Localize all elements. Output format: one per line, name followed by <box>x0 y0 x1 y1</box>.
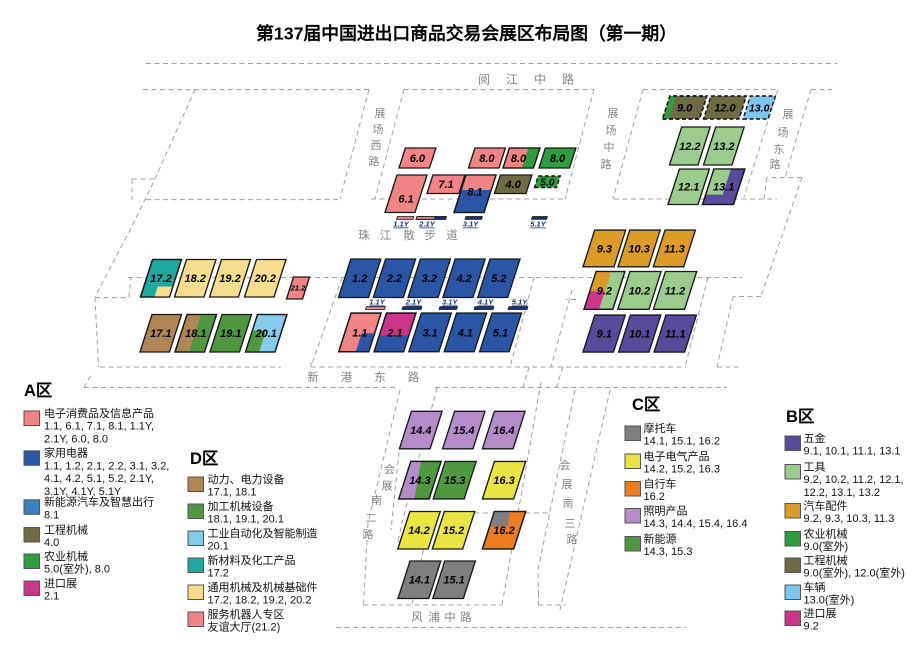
svg-text:8.1: 8.1 <box>467 187 482 199</box>
svg-text:新: 新 <box>307 370 319 384</box>
svg-text:17.2: 17.2 <box>208 568 229 580</box>
svg-text:14.3: 14.3 <box>409 475 430 487</box>
svg-text:3.1Y: 3.1Y <box>463 220 479 229</box>
svg-text:9.1, 10.1, 11.1, 13.1: 9.1, 10.1, 11.1, 13.1 <box>804 446 901 458</box>
svg-text:4.1: 4.1 <box>457 327 473 339</box>
svg-text:路: 路 <box>770 158 781 171</box>
svg-text:D区: D区 <box>190 449 219 468</box>
svg-text:路: 路 <box>562 72 574 87</box>
svg-text:12.2, 13.1, 13.2: 12.2, 13.1, 13.2 <box>804 487 880 499</box>
svg-text:15.3: 15.3 <box>444 475 465 487</box>
svg-text:路: 路 <box>601 158 612 171</box>
svg-text:摩托车: 摩托车 <box>644 421 677 435</box>
svg-text:场: 场 <box>373 122 384 136</box>
svg-text:19.2: 19.2 <box>219 273 240 285</box>
svg-text:5.1Y: 5.1Y <box>530 220 546 229</box>
svg-text:2.1Y: 2.1Y <box>418 220 435 229</box>
svg-text:14.3, 14.4, 15.4, 16.4: 14.3, 14.4, 15.4, 16.4 <box>644 518 748 530</box>
svg-text:进口展: 进口展 <box>804 607 837 620</box>
svg-text:18.1, 19.1, 20.1: 18.1, 19.1, 20.1 <box>208 514 284 526</box>
svg-text:五金: 五金 <box>804 431 826 445</box>
svg-text:9.0: 9.0 <box>677 103 693 115</box>
svg-text:8.0: 8.0 <box>479 153 495 165</box>
svg-text:B区: B区 <box>786 407 815 426</box>
svg-text:17.2, 18.2, 19.2, 20.2: 17.2, 18.2, 19.2, 20.2 <box>208 595 312 607</box>
svg-text:17.2: 17.2 <box>150 273 171 285</box>
svg-text:东: 东 <box>774 143 785 156</box>
svg-text:2.2: 2.2 <box>386 273 402 285</box>
svg-text:5.0: 5.0 <box>540 177 555 189</box>
svg-text:16.4: 16.4 <box>493 425 514 437</box>
svg-text:9.2, 10.2, 11.2, 12.1,: 9.2, 10.2, 11.2, 12.1, <box>804 474 904 486</box>
svg-text:10.1: 10.1 <box>629 329 650 341</box>
svg-text:工业自动化及智能制造: 工业自动化及智能制造 <box>208 526 318 540</box>
svg-text:16.2: 16.2 <box>644 491 665 503</box>
svg-text:阅: 阅 <box>478 73 490 87</box>
svg-text:8.0: 8.0 <box>550 153 566 165</box>
svg-text:展: 展 <box>375 107 386 120</box>
svg-text:12.0: 12.0 <box>714 103 736 115</box>
svg-text:9.2: 9.2 <box>804 621 819 633</box>
svg-text:13.0(室外): 13.0(室外) <box>804 593 855 607</box>
svg-text:20.2: 20.2 <box>253 273 275 285</box>
svg-text:中: 中 <box>444 611 456 624</box>
svg-text:13.1: 13.1 <box>713 182 734 194</box>
svg-text:浦: 浦 <box>428 611 440 624</box>
svg-text:珠: 珠 <box>358 228 370 242</box>
svg-text:4.0: 4.0 <box>505 179 522 191</box>
svg-text:工具: 工具 <box>804 460 826 473</box>
svg-text:会: 会 <box>560 459 571 472</box>
svg-text:18.1: 18.1 <box>185 328 206 340</box>
svg-text:步: 步 <box>424 229 436 242</box>
svg-text:第137届中国进出口商品交易会展区布局图（第一期）: 第137届中国进出口商品交易会展区布局图（第一期） <box>256 23 677 44</box>
svg-text:5.1Y: 5.1Y <box>512 298 528 307</box>
svg-text:服务机器人专区: 服务机器人专区 <box>208 607 285 621</box>
svg-text:1.1, 6.1, 7.1, 8.1, 1.1Y,: 1.1, 6.1, 7.1, 8.1, 1.1Y, <box>44 421 154 433</box>
svg-text:友谊大厅(21.2): 友谊大厅(21.2) <box>208 620 281 634</box>
svg-text:5.2: 5.2 <box>491 273 506 285</box>
svg-text:14.1, 15.1, 16.2: 14.1, 15.1, 16.2 <box>644 436 720 448</box>
svg-text:散: 散 <box>403 228 415 242</box>
svg-text:13.0: 13.0 <box>749 102 770 114</box>
svg-text:场: 场 <box>606 123 617 137</box>
svg-text:9.2: 9.2 <box>597 285 612 297</box>
svg-text:16.3: 16.3 <box>493 475 514 487</box>
svg-text:15.2: 15.2 <box>443 525 464 537</box>
svg-text:3.1: 3.1 <box>422 327 437 339</box>
svg-text:14.4: 14.4 <box>410 425 431 437</box>
svg-text:工程机械: 工程机械 <box>44 522 88 536</box>
svg-text:1.1Y: 1.1Y <box>369 298 385 307</box>
svg-text:12.1: 12.1 <box>678 182 699 194</box>
svg-text:21.2: 21.2 <box>290 284 306 293</box>
svg-text:11.2: 11.2 <box>665 285 686 297</box>
svg-text:20.1: 20.1 <box>208 541 229 553</box>
svg-text:9.1: 9.1 <box>597 329 612 341</box>
svg-text:三: 三 <box>565 518 576 530</box>
svg-text:9.3: 9.3 <box>597 243 612 255</box>
svg-text:9.0(室外): 9.0(室外) <box>804 539 849 553</box>
svg-text:加工机械设备: 加工机械设备 <box>208 499 274 513</box>
svg-text:农业机械: 农业机械 <box>44 549 88 563</box>
svg-text:风: 风 <box>411 611 423 624</box>
svg-text:15.1: 15.1 <box>443 575 464 587</box>
svg-text:展: 展 <box>382 480 393 493</box>
svg-text:8.0: 8.0 <box>511 153 527 165</box>
svg-text:路: 路 <box>363 528 374 541</box>
svg-text:20.1: 20.1 <box>254 328 276 340</box>
svg-text:江: 江 <box>506 73 518 87</box>
svg-text:车辆: 车辆 <box>804 580 826 594</box>
svg-text:路: 路 <box>408 370 420 384</box>
svg-text:14.1: 14.1 <box>409 575 430 587</box>
svg-text:3.2: 3.2 <box>422 273 437 285</box>
svg-text:5.1: 5.1 <box>493 327 508 339</box>
svg-text:17.1, 18.1: 17.1, 18.1 <box>208 487 257 499</box>
svg-text:14.2: 14.2 <box>408 525 429 537</box>
svg-text:中: 中 <box>604 141 615 154</box>
svg-text:1.1, 1.2, 2.1, 2.2, 3.1, 3.2,: 1.1, 1.2, 2.1, 2.2, 3.1, 3.2, <box>44 460 169 472</box>
svg-text:路: 路 <box>369 155 380 168</box>
svg-text:C区: C区 <box>632 395 661 414</box>
svg-text:港: 港 <box>341 371 353 384</box>
svg-text:展: 展 <box>608 107 619 120</box>
svg-text:7.1: 7.1 <box>438 179 453 191</box>
svg-text:南: 南 <box>371 494 382 507</box>
svg-text:新材料及化工产品: 新材料及化工产品 <box>208 553 296 567</box>
svg-text:西: 西 <box>371 140 382 152</box>
svg-text:9.2, 9.3, 10.3, 11.3: 9.2, 9.3, 10.3, 11.3 <box>804 513 895 525</box>
svg-text:江: 江 <box>380 229 392 242</box>
svg-text:工程机械: 工程机械 <box>804 553 848 567</box>
svg-text:南: 南 <box>563 497 574 510</box>
svg-text:5.0(室外), 8.0: 5.0(室外), 8.0 <box>44 562 110 576</box>
svg-text:6.0: 6.0 <box>410 153 426 165</box>
svg-text:照明产品: 照明产品 <box>644 503 688 517</box>
svg-text:东: 东 <box>374 371 386 384</box>
svg-text:15.4: 15.4 <box>453 425 474 437</box>
svg-text:中: 中 <box>534 72 546 87</box>
svg-text:13.2: 13.2 <box>713 141 734 153</box>
svg-text:二: 二 <box>366 513 377 525</box>
svg-text:2.1Y, 6.0, 8.0: 2.1Y, 6.0, 8.0 <box>44 433 108 445</box>
svg-text:新能源: 新能源 <box>644 531 677 545</box>
svg-text:2.1Y: 2.1Y <box>405 298 422 307</box>
svg-text:12.2: 12.2 <box>679 141 700 153</box>
svg-text:4.2: 4.2 <box>455 273 471 285</box>
svg-text:家用电器: 家用电器 <box>44 446 88 460</box>
svg-text:1.1Y: 1.1Y <box>393 220 409 229</box>
svg-text:展: 展 <box>783 108 794 121</box>
svg-text:4.1Y: 4.1Y <box>477 298 494 307</box>
svg-text:通用机械及机械基础件: 通用机械及机械基础件 <box>208 580 318 594</box>
svg-text:展: 展 <box>562 478 573 491</box>
svg-text:动力、电力设备: 动力、电力设备 <box>208 472 285 486</box>
svg-text:进口展: 进口展 <box>44 577 77 590</box>
svg-text:17.1: 17.1 <box>150 328 171 340</box>
svg-text:14.2, 15.2, 16.3: 14.2, 15.2, 16.3 <box>644 464 720 476</box>
svg-text:18.2: 18.2 <box>184 273 205 285</box>
svg-text:会: 会 <box>384 463 395 476</box>
svg-text:A区: A区 <box>24 381 53 400</box>
svg-text:10.3: 10.3 <box>628 243 649 255</box>
svg-text:4.0: 4.0 <box>44 537 59 549</box>
svg-text:2.1: 2.1 <box>44 591 59 603</box>
svg-text:3.1Y: 3.1Y <box>442 298 458 307</box>
svg-text:9.0(室外), 12.0(室外): 9.0(室外), 12.0(室外) <box>804 566 905 580</box>
svg-text:1.2: 1.2 <box>352 273 367 285</box>
svg-text:汽车配件: 汽车配件 <box>804 498 848 512</box>
svg-text:19.1: 19.1 <box>220 328 241 340</box>
svg-text:14.3, 15.3: 14.3, 15.3 <box>644 546 693 558</box>
svg-text:1.1: 1.1 <box>352 327 367 339</box>
svg-text:电子电气产品: 电子电气产品 <box>644 449 710 463</box>
svg-text:11.3: 11.3 <box>664 243 685 255</box>
svg-text:16.2: 16.2 <box>493 525 514 537</box>
svg-text:自行车: 自行车 <box>644 476 677 490</box>
svg-text:8.1: 8.1 <box>44 509 59 521</box>
svg-text:场: 场 <box>778 125 789 139</box>
svg-text:4.1, 4.2, 5.1, 5.2, 2.1Y,: 4.1, 4.2, 5.1, 5.2, 2.1Y, <box>44 473 154 485</box>
svg-text:2.1: 2.1 <box>386 327 402 339</box>
svg-text:11.1: 11.1 <box>665 329 686 341</box>
svg-text:路: 路 <box>567 533 578 546</box>
svg-text:6.1: 6.1 <box>398 194 413 206</box>
svg-text:10.2: 10.2 <box>629 285 650 297</box>
svg-text:农业机械: 农业机械 <box>804 526 848 540</box>
svg-text:电子消费品及信息产品: 电子消费品及信息产品 <box>44 406 154 420</box>
svg-text:新能源汽车及智慧出行: 新能源汽车及智慧出行 <box>44 495 154 509</box>
svg-text:路: 路 <box>460 610 472 624</box>
svg-text:道: 道 <box>446 228 458 242</box>
